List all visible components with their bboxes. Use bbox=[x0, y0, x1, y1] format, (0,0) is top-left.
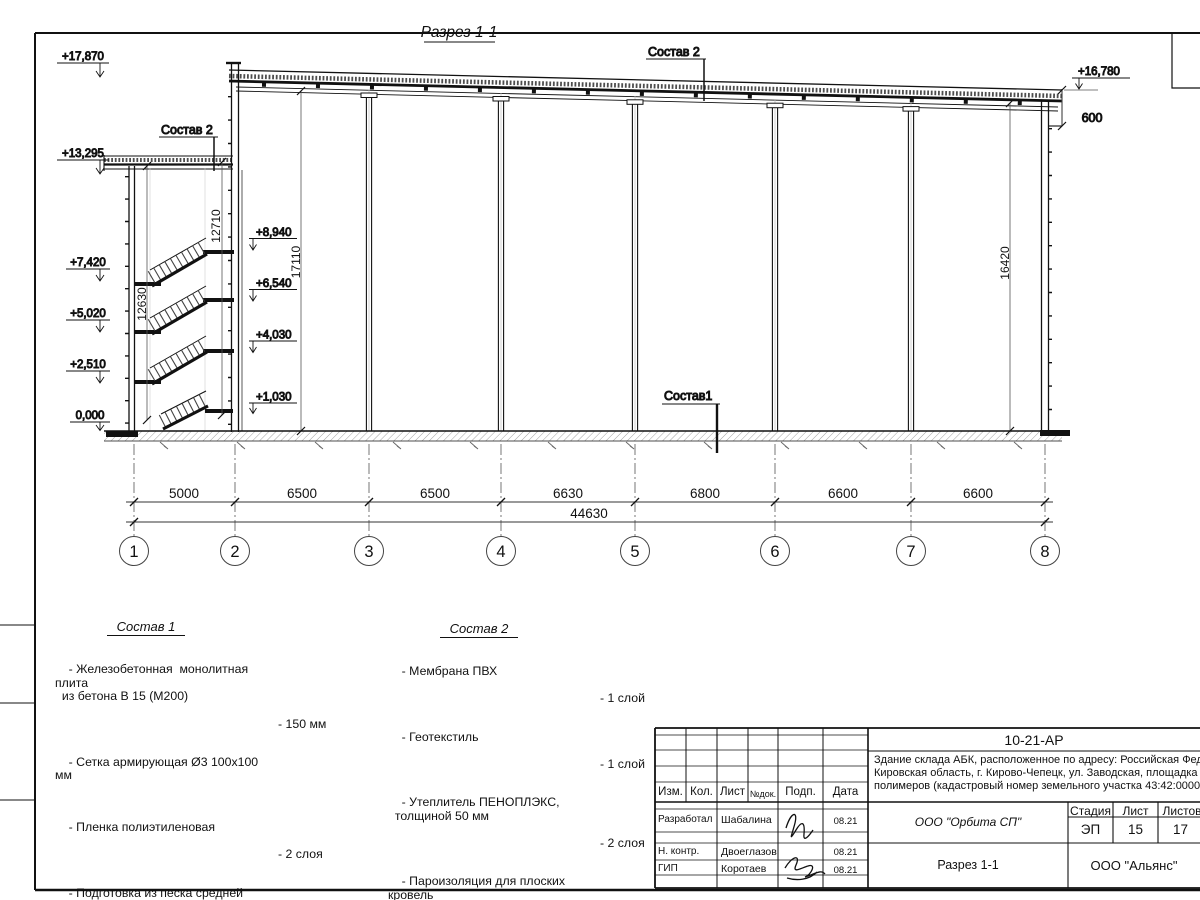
legend2-item-name: - Пароизоляция для плоских кровель bbox=[388, 874, 569, 900]
elev-13295: +13,295 bbox=[62, 148, 104, 160]
legend1-item-name: - Сетка армирующая Ø3 100х100 мм bbox=[55, 755, 262, 783]
legend1-item: - Подготовка из песка средней крупности … bbox=[55, 873, 345, 900]
elev-arrow-icon bbox=[250, 341, 257, 353]
soil-break-marks bbox=[160, 442, 1022, 449]
dim-5000: 5000 bbox=[169, 486, 199, 501]
legend2-item-name: - Утеплитель ПЕНОПЛЭКС, толщиной 50 мм bbox=[388, 795, 560, 823]
leaders: Состав 2 Состав 2 Состав1 bbox=[159, 45, 720, 453]
elev-0000: 0,000 bbox=[76, 410, 105, 422]
dim-12630: 12630 bbox=[135, 287, 149, 321]
stage-value: ЭП bbox=[1068, 822, 1113, 837]
grid-bubbles: 1 2 3 4 5 6 7 8 bbox=[120, 537, 1060, 566]
row-date: 08.21 bbox=[823, 847, 868, 858]
signature-korotaev bbox=[785, 858, 825, 880]
row-date: 08.21 bbox=[823, 816, 868, 827]
vertical-dims: 12710 12630 17110 16420 bbox=[135, 87, 1014, 435]
wall-grid2 bbox=[230, 64, 242, 432]
axis-bubble-6: 6 bbox=[770, 543, 779, 561]
section-title: Разрез 1-1 bbox=[421, 24, 498, 42]
wall-grid8 bbox=[1042, 101, 1051, 432]
legend2-item-value: - 1 слой bbox=[600, 758, 645, 772]
legend2-item-name: - Геотекстиль bbox=[402, 730, 479, 744]
stage-label: Стадия bbox=[1068, 804, 1113, 818]
axis-bubble-3: 3 bbox=[364, 543, 373, 561]
roof-deck-hatch bbox=[229, 76, 1062, 96]
axis-bubble-1: 1 bbox=[129, 543, 138, 561]
signatures bbox=[785, 814, 825, 879]
legend2-item: - Мембрана ПВХ - 1 слой bbox=[388, 652, 688, 706]
col-ndok: №док. bbox=[748, 789, 778, 799]
railing-posts bbox=[152, 246, 207, 278]
elev-arrow-icon bbox=[96, 269, 104, 281]
elev-5020: +5,020 bbox=[70, 308, 106, 320]
project-description-line: Здание склада АБК, расположенное по адре… bbox=[874, 754, 1200, 766]
elev-arrow-icon bbox=[96, 422, 104, 431]
dim-6600a: 6600 bbox=[828, 486, 858, 501]
legend1-item: - Железобетонная монолитная плита из бет… bbox=[55, 650, 345, 732]
elevation-marks-left: +17,870 +13,295 +7,420 +5,020 +2,510 0,0… bbox=[57, 51, 110, 431]
axis-bubble-5: 5 bbox=[630, 543, 639, 561]
project-description-line: Кировская область, г. Кирово-Чепецк, ул.… bbox=[874, 767, 1200, 779]
abk-tower bbox=[104, 155, 234, 432]
legend1-item: - Пленка полиэтиленовая - 2 слоя bbox=[55, 808, 345, 862]
elev-arrow-icon bbox=[96, 320, 104, 332]
elev-arrow-icon bbox=[1076, 78, 1083, 89]
elev-8940: +8,940 bbox=[256, 227, 292, 239]
sheet-value: 15 bbox=[1113, 822, 1158, 837]
elev-16780: +16,780 bbox=[1078, 66, 1120, 78]
legend2-item: - Пароизоляция для плоских кровель - 1 с… bbox=[388, 861, 688, 900]
span-dim-texts: 5000 6500 6500 6630 6800 6600 6600 bbox=[169, 486, 993, 501]
right-footing bbox=[1040, 430, 1070, 436]
legend1-item-name: - Подготовка из песка средней крупности bbox=[55, 886, 243, 900]
dim-6500b: 6500 bbox=[420, 486, 450, 501]
row-name: Коротаев bbox=[721, 863, 766, 875]
elev-arrow-icon bbox=[96, 371, 104, 383]
railing-posts bbox=[152, 294, 207, 326]
leader-sostav1-label: Состав1 bbox=[664, 389, 712, 403]
row-role: Разработал bbox=[658, 814, 712, 825]
col-kol: Кол. bbox=[686, 786, 717, 798]
signature-shabalina bbox=[786, 814, 813, 838]
legend-sostav-1: Состав 1 - Железобетонная монолитная пли… bbox=[55, 620, 345, 900]
elev-arrow-icon bbox=[96, 160, 104, 174]
elev-17870: +17,870 bbox=[62, 51, 104, 63]
legend1-item: - Сетка армирующая Ø3 100х100 мм bbox=[55, 742, 345, 796]
legend1-item-name: - Железобетонная монолитная плита из бет… bbox=[55, 662, 252, 703]
leader-sostav2-left-label: Состав 2 bbox=[161, 123, 213, 137]
dim-6500a: 6500 bbox=[287, 486, 317, 501]
legend2-item: - Геотекстиль - 1 слой bbox=[388, 717, 688, 771]
row-name: Двоеглазов bbox=[721, 846, 777, 858]
dim-6630: 6630 bbox=[553, 486, 583, 501]
elev-arrow-icon bbox=[96, 63, 104, 77]
legend2-item: - Утеплитель ПЕНОПЛЭКС, толщиной 50 мм -… bbox=[388, 782, 688, 850]
row-name: Шабалина bbox=[721, 814, 772, 826]
axis-bubble-8: 8 bbox=[1040, 543, 1049, 561]
legend2-item-value: - 2 слоя bbox=[600, 837, 645, 851]
legend1-title: Состав 1 bbox=[107, 620, 185, 636]
row-role: ГИП bbox=[658, 863, 678, 874]
elevation-marks-right: +16,780 600 bbox=[1058, 66, 1130, 130]
legend2-title: Состав 2 bbox=[440, 622, 518, 638]
elev-arrow-icon bbox=[250, 290, 257, 302]
sheets-label: Листов bbox=[1158, 804, 1200, 818]
leader-sostav2-top-label: Состав 2 bbox=[648, 45, 700, 59]
sheets-value: 17 bbox=[1158, 822, 1200, 837]
elev-arrow-icon bbox=[250, 239, 257, 251]
elev-4030: +4,030 bbox=[256, 330, 292, 342]
dim-6600b: 6600 bbox=[963, 486, 993, 501]
col-list: Лист bbox=[717, 786, 748, 798]
elev-6540: +6,540 bbox=[256, 278, 292, 290]
elev-1030: +1,030 bbox=[256, 392, 292, 404]
dim-17110: 17110 bbox=[289, 245, 303, 278]
section-title-text: Разрез 1-1 bbox=[421, 24, 498, 41]
sheet-label: Лист bbox=[1113, 804, 1158, 818]
ground-slab bbox=[104, 430, 1070, 449]
axis-bubble-2: 2 bbox=[230, 543, 239, 561]
legend1-item-name: - Пленка полиэтиленовая bbox=[69, 820, 215, 834]
elev-arrow-icon bbox=[250, 403, 257, 414]
elev-2510: +2,510 bbox=[70, 359, 106, 371]
design-company: ООО "Орбита СП" bbox=[868, 815, 1068, 829]
dim-6800: 6800 bbox=[690, 486, 720, 501]
dim-44630: 44630 bbox=[570, 506, 608, 521]
row-role: Н. контр. bbox=[658, 846, 699, 857]
col-izm: Изм. bbox=[655, 786, 686, 798]
drawing-name: Разрез 1-1 bbox=[868, 858, 1068, 872]
columns bbox=[361, 90, 919, 431]
dimension-chain: 5000 6500 6500 6630 6800 6600 6600 44630… bbox=[120, 444, 1060, 566]
elev-7420: +7,420 bbox=[70, 257, 106, 269]
legend1-item-value: - 2 слоя bbox=[278, 848, 323, 862]
col-data: Дата bbox=[823, 786, 868, 798]
col-podp: Подп. bbox=[778, 786, 823, 798]
dim-12710: 12710 bbox=[209, 209, 223, 243]
axis-bubble-4: 4 bbox=[496, 543, 505, 561]
drawing-sheet: Разрез 1-1 bbox=[0, 0, 1200, 900]
legend1-item-value: - 150 мм bbox=[278, 718, 326, 732]
contractor-company: ООО "Альянс" bbox=[1068, 858, 1200, 873]
dim-16420: 16420 bbox=[998, 246, 1012, 280]
left-footing bbox=[106, 431, 138, 437]
row-date: 08.21 bbox=[823, 865, 868, 876]
main-roof bbox=[226, 63, 1062, 126]
axis-bubble-7: 7 bbox=[906, 543, 915, 561]
doc-number: 10-21-АР bbox=[868, 732, 1200, 748]
legend-sostav-2: Состав 2 - Мембрана ПВХ - 1 слой - Геоте… bbox=[388, 622, 688, 900]
railing-posts bbox=[152, 344, 207, 376]
dim-600: 600 bbox=[1082, 111, 1103, 125]
project-description-line: полимеров (кадастровый номер земельного … bbox=[874, 780, 1200, 792]
legend2-item-name: - Мембрана ПВХ bbox=[402, 664, 498, 678]
corner-stamp-box bbox=[1172, 33, 1200, 88]
legend2-item-value: - 1 слой bbox=[600, 692, 645, 706]
